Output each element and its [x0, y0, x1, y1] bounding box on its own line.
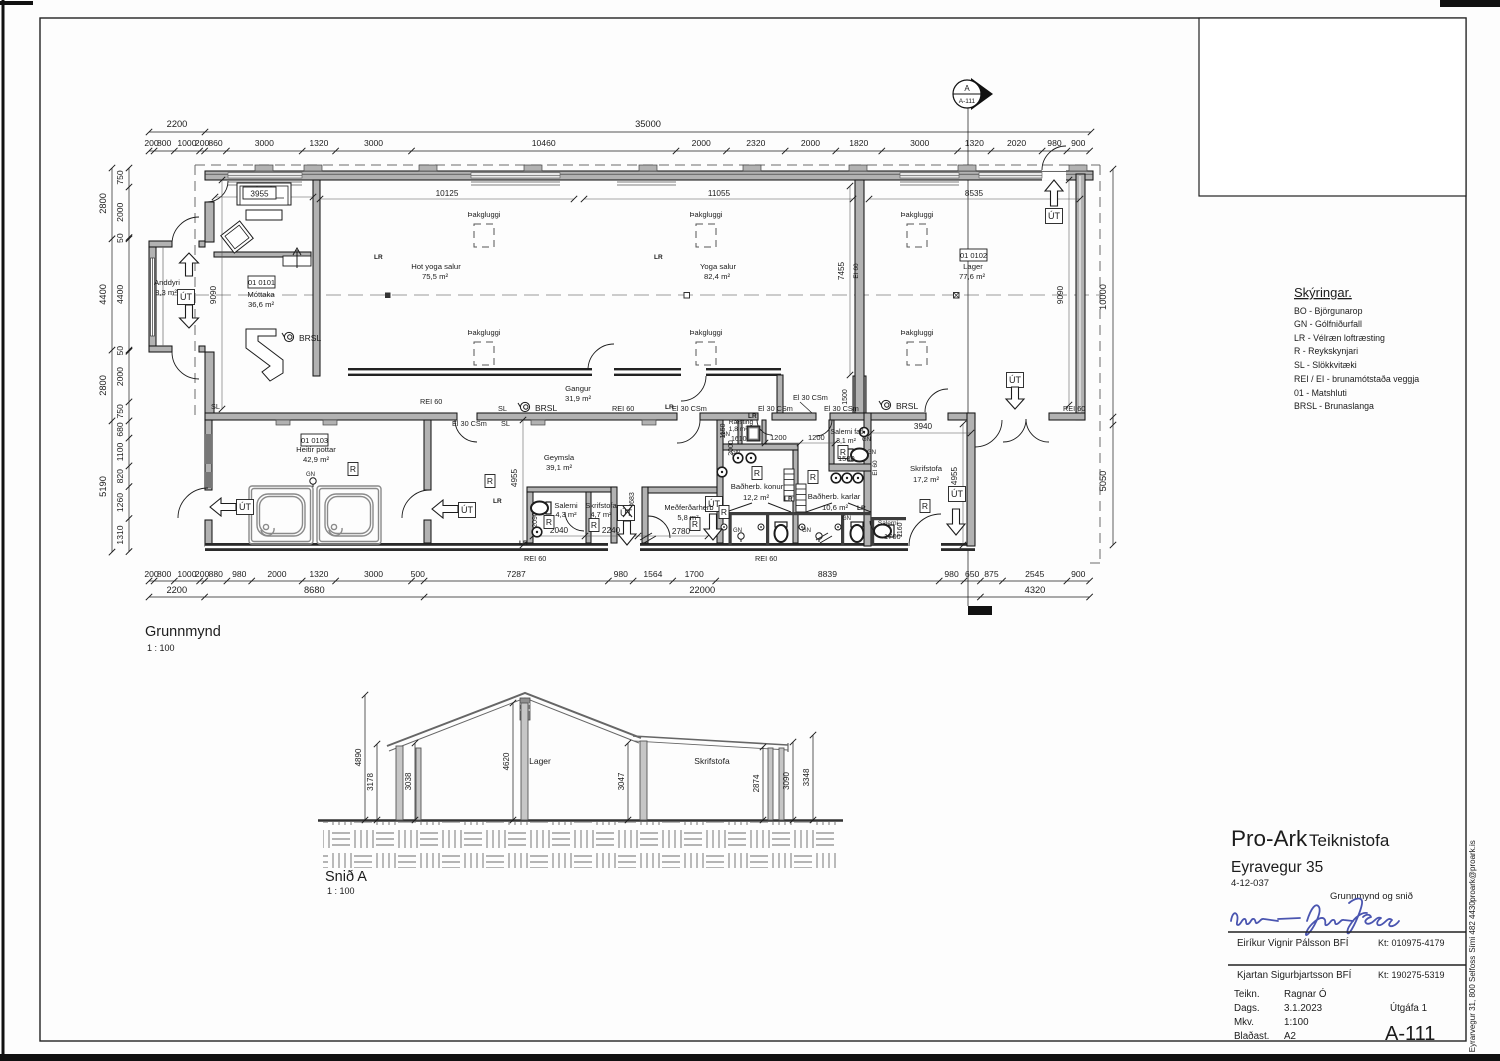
svg-text:Skrifstofa: Skrifstofa — [694, 756, 730, 766]
svg-text:El 30 CSm: El 30 CSm — [824, 404, 859, 413]
svg-text:3955: 3955 — [250, 190, 269, 199]
svg-text:R: R — [810, 472, 816, 482]
svg-text:A2: A2 — [1284, 1031, 1296, 1042]
svg-text:Þakgluggi: Þakgluggi — [690, 328, 723, 337]
svg-text:4320: 4320 — [1025, 585, 1046, 595]
svg-text:R: R — [546, 517, 552, 527]
svg-text:Meðferðarherb: Meðferðarherb — [664, 503, 713, 512]
svg-text:Hot yoga salur: Hot yoga salur — [411, 262, 461, 271]
svg-text:2000: 2000 — [801, 138, 820, 148]
svg-text:Mkv.: Mkv. — [1234, 1017, 1254, 1028]
svg-text:BRSL: BRSL — [299, 333, 321, 343]
svg-text:4955: 4955 — [510, 468, 519, 487]
svg-text:3090: 3090 — [782, 772, 791, 790]
svg-text:Grunnmynd: Grunnmynd — [145, 624, 221, 640]
svg-text:R: R — [922, 501, 928, 511]
svg-text:4-12-037: 4-12-037 — [1231, 878, 1269, 889]
svg-text:4955: 4955 — [950, 466, 959, 485]
svg-text:Pro-Ark: Pro-Ark — [1231, 826, 1308, 851]
svg-text:BRSL: BRSL — [896, 401, 918, 411]
svg-text:1 : 100: 1 : 100 — [327, 886, 355, 896]
svg-text:2000: 2000 — [692, 138, 711, 148]
svg-text:BRSL: BRSL — [535, 403, 557, 413]
svg-text:ÚT: ÚT — [461, 505, 473, 515]
svg-text:R: R — [487, 476, 493, 486]
svg-text:REI 60: REI 60 — [612, 404, 634, 413]
svg-text:980: 980 — [232, 569, 247, 579]
svg-text:4400: 4400 — [115, 285, 125, 304]
svg-text:01 0103: 01 0103 — [301, 436, 328, 445]
svg-text:Móttaka: Móttaka — [247, 290, 275, 299]
svg-text:39,1 m²: 39,1 m² — [546, 463, 573, 472]
svg-text:1000: 1000 — [177, 138, 196, 148]
svg-text:8535: 8535 — [965, 189, 984, 198]
svg-text:980: 980 — [1047, 138, 1062, 148]
svg-text:3038: 3038 — [404, 772, 413, 790]
svg-text:1500: 1500 — [842, 389, 849, 405]
svg-text:5190: 5190 — [98, 476, 108, 497]
svg-text:SL - Slökkvitæki: SL - Slökkvitæki — [1294, 360, 1357, 370]
svg-text:Sími 482 4430: Sími 482 4430 — [1468, 901, 1477, 953]
svg-text:A-111: A-111 — [959, 98, 976, 105]
svg-text:REI 60: REI 60 — [420, 397, 442, 406]
svg-text:1820: 1820 — [849, 138, 868, 148]
svg-text:1320: 1320 — [965, 138, 984, 148]
svg-text:El 30 CSm: El 30 CSm — [793, 393, 828, 402]
svg-text:1700: 1700 — [685, 569, 704, 579]
svg-text:22000: 22000 — [689, 585, 715, 595]
svg-text:900: 900 — [1071, 569, 1086, 579]
svg-text:GN - Gólfniðurfall: GN - Gólfniðurfall — [1294, 319, 1362, 329]
svg-text:Baðherb. karlar: Baðherb. karlar — [808, 492, 861, 501]
svg-text:1,8 m²: 1,8 m² — [729, 426, 748, 433]
svg-text:35000: 35000 — [635, 119, 661, 129]
svg-text:2800: 2800 — [98, 375, 108, 396]
svg-text:3.1.2023: 3.1.2023 — [1284, 1003, 1323, 1014]
svg-text:A-111: A-111 — [1385, 1023, 1435, 1045]
svg-text:BRSL - Brunaslanga: BRSL - Brunaslanga — [1294, 401, 1374, 411]
svg-text:3000: 3000 — [364, 138, 383, 148]
svg-text:36,6 m²: 36,6 m² — [248, 300, 275, 309]
svg-text:10,6 m²: 10,6 m² — [822, 503, 849, 512]
svg-text:75,5 m²: 75,5 m² — [422, 272, 449, 281]
svg-text:7455: 7455 — [837, 261, 846, 280]
svg-text:680: 680 — [115, 422, 125, 437]
svg-text:Grunnmynd og snið: Grunnmynd og snið — [1330, 891, 1413, 902]
svg-text:Anddyri: Anddyri — [154, 278, 180, 287]
svg-text:750: 750 — [115, 170, 125, 185]
svg-text:Salerni fatl.: Salerni fatl. — [830, 429, 865, 436]
svg-text:1:100: 1:100 — [1284, 1017, 1309, 1028]
svg-text:LR: LR — [519, 540, 528, 547]
svg-text:Gangur: Gangur — [565, 384, 591, 393]
svg-text:1580: 1580 — [838, 454, 855, 463]
svg-text:LR - Vélræn loftræsting: LR - Vélræn loftræsting — [1294, 333, 1385, 343]
svg-text:4,3 m²: 4,3 m² — [555, 510, 577, 519]
svg-text:GN: GN — [862, 437, 871, 443]
svg-text:880: 880 — [209, 569, 224, 579]
svg-text:Kt: 190275-5319: Kt: 190275-5319 — [1378, 970, 1445, 980]
svg-text:Eyrarvegur 31, 800 Selfoss: Eyrarvegur 31, 800 Selfoss — [1468, 956, 1477, 1053]
svg-text:2200: 2200 — [167, 119, 188, 129]
svg-text:ÚT: ÚT — [1048, 211, 1060, 221]
svg-text:77,6 m²: 77,6 m² — [959, 272, 986, 281]
svg-text:REI / EI - brunamótstaða veggj: REI / EI - brunamótstaða veggja — [1294, 374, 1419, 384]
svg-text:3940: 3940 — [914, 422, 933, 431]
svg-text:El 30 CSm: El 30 CSm — [672, 404, 707, 413]
svg-text:1700: 1700 — [884, 532, 901, 541]
svg-text:LR: LR — [784, 496, 793, 503]
svg-text:Eiríkur Vignir Pálsson BFÍ: Eiríkur Vignir Pálsson BFÍ — [1237, 938, 1349, 949]
svg-text:BO - Björgunarop: BO - Björgunarop — [1294, 306, 1363, 316]
svg-text:Eyravegur 35: Eyravegur 35 — [1231, 859, 1323, 876]
svg-text:9090: 9090 — [1056, 285, 1065, 304]
svg-text:REI 60: REI 60 — [1063, 404, 1085, 413]
svg-text:10460: 10460 — [532, 138, 556, 148]
svg-text:SL: SL — [211, 402, 220, 411]
svg-text:EI 60: EI 60 — [853, 263, 860, 279]
svg-text:2000: 2000 — [267, 569, 286, 579]
svg-text:LR: LR — [493, 498, 502, 505]
svg-text:GN: GN — [867, 450, 876, 456]
svg-text:Skrifstofa: Skrifstofa — [910, 464, 943, 473]
svg-text:A: A — [964, 84, 970, 93]
svg-text:ÚT: ÚT — [1009, 375, 1021, 385]
svg-text:750: 750 — [115, 404, 125, 419]
svg-text:1260: 1260 — [115, 493, 125, 512]
svg-text:Skrifstofa: Skrifstofa — [585, 501, 617, 510]
svg-text:1310: 1310 — [115, 525, 125, 544]
svg-text:01 0101: 01 0101 — [248, 278, 275, 287]
svg-text:3047: 3047 — [617, 772, 626, 790]
svg-text:Teiknistofa: Teiknistofa — [1309, 831, 1390, 850]
svg-text:3000: 3000 — [910, 138, 929, 148]
svg-text:R: R — [591, 520, 597, 530]
svg-text:GN: GN — [721, 432, 730, 438]
svg-text:El 30 CSm: El 30 CSm — [452, 419, 487, 428]
svg-text:Lager: Lager — [963, 262, 983, 271]
svg-text:17,2 m²: 17,2 m² — [913, 475, 940, 484]
svg-text:GN: GN — [306, 472, 315, 478]
svg-text:820: 820 — [115, 469, 125, 484]
svg-text:1320: 1320 — [309, 569, 328, 579]
svg-text:SL: SL — [501, 419, 510, 428]
svg-text:10125: 10125 — [436, 189, 459, 198]
svg-text:Þakgluggi: Þakgluggi — [901, 210, 934, 219]
svg-text:Ræsting: Ræsting — [729, 419, 754, 426]
svg-text:2000: 2000 — [115, 202, 125, 221]
svg-text:82,4 m²: 82,4 m² — [704, 272, 731, 281]
svg-text:875: 875 — [984, 569, 999, 579]
svg-text:2320: 2320 — [746, 138, 765, 148]
svg-text:200: 200 — [195, 569, 210, 579]
svg-text:01 0102: 01 0102 — [960, 251, 987, 260]
svg-text:10000: 10000 — [1098, 284, 1108, 310]
svg-text:980: 980 — [614, 569, 629, 579]
svg-text:Þakgluggi: Þakgluggi — [690, 210, 723, 219]
svg-text:4890: 4890 — [354, 748, 363, 766]
svg-text:Snið A: Snið A — [325, 869, 367, 885]
svg-text:Þakgluggi: Þakgluggi — [468, 328, 501, 337]
svg-text:GN: GN — [842, 516, 851, 522]
svg-text:ÚT: ÚT — [951, 489, 963, 499]
svg-text:50: 50 — [115, 233, 125, 243]
svg-text:Baðherb. konur: Baðherb. konur — [731, 482, 784, 491]
svg-text:Blaðast.: Blaðast. — [1234, 1031, 1269, 1042]
svg-text:860: 860 — [208, 138, 223, 148]
svg-text:8680: 8680 — [304, 585, 325, 595]
svg-text:REI 60: REI 60 — [755, 554, 777, 563]
svg-text:GN: GN — [731, 450, 740, 456]
svg-text:1200: 1200 — [770, 433, 787, 442]
svg-text:2020: 2020 — [1007, 138, 1026, 148]
svg-text:Ragnar Ó: Ragnar Ó — [1284, 989, 1327, 1000]
svg-text:LR: LR — [857, 505, 866, 512]
svg-text:9090: 9090 — [209, 285, 218, 304]
svg-text:5050: 5050 — [1098, 471, 1108, 492]
svg-text:11055: 11055 — [708, 189, 731, 198]
svg-text:Þakgluggi: Þakgluggi — [468, 210, 501, 219]
svg-text:SL: SL — [498, 404, 507, 413]
svg-text:4400: 4400 — [98, 284, 108, 305]
svg-text:42,9 m²: 42,9 m² — [303, 455, 330, 464]
svg-text:Þakgluggi: Þakgluggi — [901, 328, 934, 337]
svg-text:R: R — [754, 468, 760, 478]
svg-text:LR: LR — [654, 254, 663, 261]
svg-text:4,7 m²: 4,7 m² — [590, 510, 612, 519]
svg-text:Salerni: Salerni — [878, 520, 898, 527]
svg-text:200: 200 — [195, 138, 210, 148]
svg-text:2874: 2874 — [752, 774, 761, 792]
svg-text:ÚT: ÚT — [180, 292, 192, 302]
svg-text:REI 60: REI 60 — [524, 554, 546, 563]
svg-text:ÚT: ÚT — [239, 502, 251, 512]
svg-text:Dags.: Dags. — [1234, 1003, 1260, 1014]
svg-text:7287: 7287 — [507, 569, 526, 579]
svg-text:LR: LR — [748, 413, 757, 420]
svg-text:1000: 1000 — [177, 569, 196, 579]
svg-text:800: 800 — [157, 138, 172, 148]
svg-text:5,8 m²: 5,8 m² — [677, 513, 699, 522]
svg-text:800: 800 — [157, 569, 172, 579]
svg-text:980: 980 — [944, 569, 959, 579]
svg-text:3000: 3000 — [255, 138, 274, 148]
svg-text:50: 50 — [115, 346, 125, 356]
svg-text:proark@proark.is: proark@proark.is — [1468, 840, 1477, 901]
svg-text:1320: 1320 — [309, 138, 328, 148]
svg-text:2800: 2800 — [98, 193, 108, 214]
svg-text:8,3 m²: 8,3 m² — [155, 288, 177, 297]
svg-text:R - Reykskynjari: R - Reykskynjari — [1294, 346, 1358, 356]
svg-text:1564: 1564 — [643, 569, 662, 579]
svg-text:3178: 3178 — [366, 773, 375, 791]
svg-text:R: R — [350, 464, 356, 474]
svg-text:4620: 4620 — [502, 752, 511, 770]
svg-text:500: 500 — [411, 569, 426, 579]
svg-text:3,1 m²: 3,1 m² — [836, 438, 857, 445]
svg-text:Yoga salur: Yoga salur — [700, 262, 736, 271]
svg-text:Skýringar.: Skýringar. — [1294, 285, 1352, 300]
svg-text:Teikn.: Teikn. — [1234, 989, 1260, 1000]
svg-text:2780: 2780 — [672, 527, 691, 536]
svg-text:Útgáfa 1: Útgáfa 1 — [1390, 1003, 1427, 1014]
svg-text:3348: 3348 — [802, 768, 811, 786]
svg-text:GN: GN — [802, 528, 811, 534]
svg-text:LR: LR — [374, 254, 383, 261]
svg-text:EI 60: EI 60 — [872, 460, 879, 476]
svg-text:Geymsla: Geymsla — [544, 453, 575, 462]
svg-text:Kt: 010975-4179: Kt: 010975-4179 — [1378, 938, 1445, 948]
svg-text:GN: GN — [733, 528, 742, 534]
svg-text:650: 650 — [965, 569, 980, 579]
svg-text:1100: 1100 — [115, 443, 125, 462]
svg-text:2545: 2545 — [1025, 569, 1044, 579]
svg-text:Salerni: Salerni — [554, 501, 578, 510]
svg-text:1610: 1610 — [731, 436, 747, 443]
svg-text:8839: 8839 — [818, 569, 837, 579]
svg-text:2000: 2000 — [115, 367, 125, 386]
svg-text:01 - Matshluti: 01 - Matshluti — [1294, 388, 1347, 398]
svg-text:El 30 CSm: El 30 CSm — [758, 404, 793, 413]
svg-text:1 : 100: 1 : 100 — [147, 643, 175, 653]
svg-text:3000: 3000 — [364, 569, 383, 579]
svg-text:Kjartan Sigurbjartsson BFÍ: Kjartan Sigurbjartsson BFÍ — [1237, 970, 1352, 981]
svg-text:31,9 m²: 31,9 m² — [565, 394, 592, 403]
svg-text:900: 900 — [1071, 138, 1086, 148]
svg-text:1200: 1200 — [808, 433, 825, 442]
svg-text:Lager: Lager — [529, 756, 551, 766]
svg-text:R: R — [721, 507, 727, 517]
svg-text:12,2 m²: 12,2 m² — [743, 493, 770, 502]
svg-text:2200: 2200 — [166, 585, 187, 595]
